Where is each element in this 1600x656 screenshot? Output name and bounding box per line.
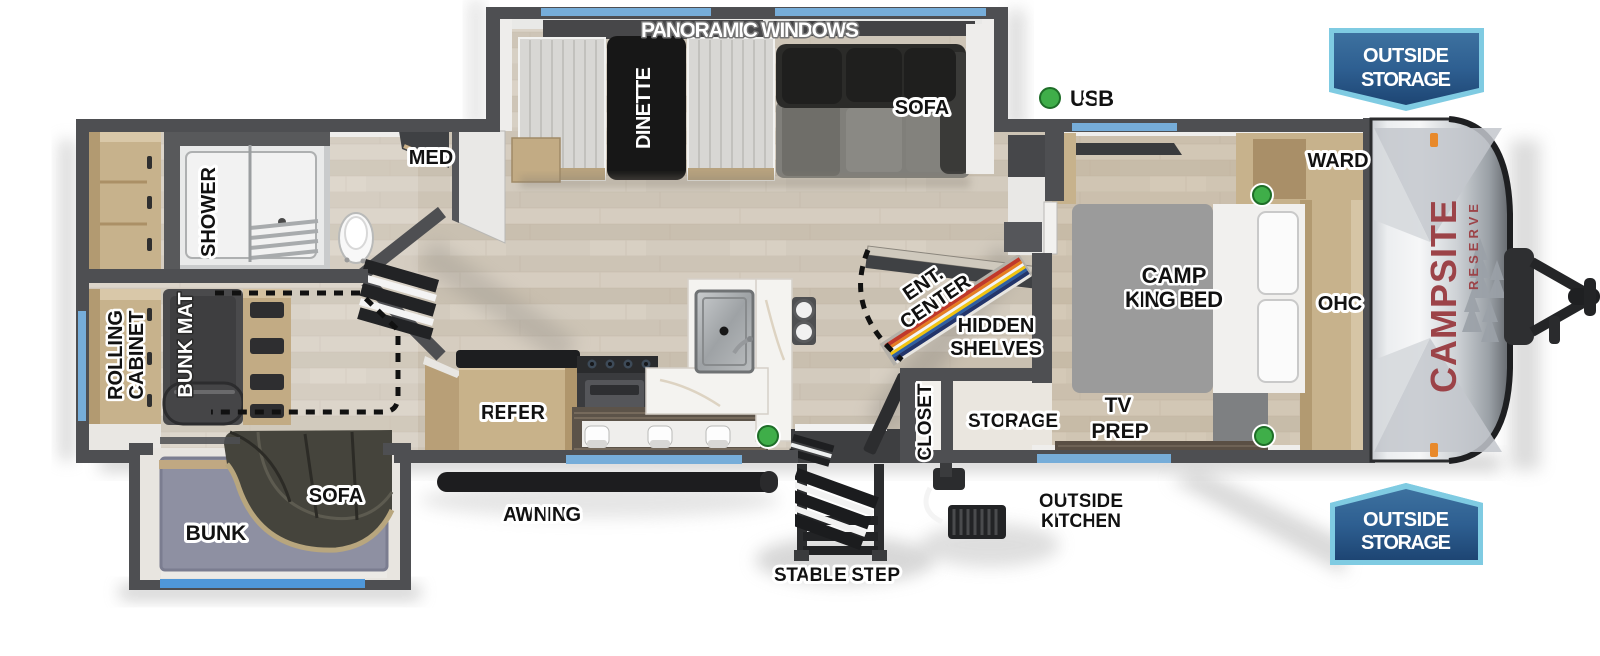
svg-text:DINETTE: DINETTE xyxy=(633,67,655,149)
svg-text:STABLE STEP: STABLE STEP xyxy=(774,565,900,586)
svg-text:OUTSIDE: OUTSIDE xyxy=(1363,45,1449,67)
svg-text:ROLLINGCABINET: ROLLINGCABINET xyxy=(105,310,148,400)
svg-text:SOFA: SOFA xyxy=(309,485,363,507)
svg-text:CLOSET: CLOSET xyxy=(915,383,936,460)
svg-text:STORAGE: STORAGE xyxy=(1361,69,1451,91)
svg-text:HIDDENSHELVES: HIDDENSHELVES xyxy=(950,315,1042,360)
svg-text:SHOWER: SHOWER xyxy=(198,166,220,257)
svg-text:SOFA: SOFA xyxy=(895,97,949,119)
svg-text:MED: MED xyxy=(409,147,453,169)
svg-text:WARD: WARD xyxy=(1307,150,1368,172)
svg-text:STORAGE: STORAGE xyxy=(1361,532,1451,554)
svg-text:BUNK MAT: BUNK MAT xyxy=(175,292,197,397)
svg-text:PANORAMIC WINDOWS: PANORAMIC WINDOWS xyxy=(641,19,859,42)
svg-text:OUTSIDE: OUTSIDE xyxy=(1363,509,1449,531)
svg-text:CAMPSITE: CAMPSITE xyxy=(1423,199,1464,393)
svg-text:OUTSIDEKITCHEN: OUTSIDEKITCHEN xyxy=(1039,491,1123,532)
svg-text:USB: USB xyxy=(1070,86,1114,111)
svg-text:BUNK: BUNK xyxy=(186,522,247,545)
svg-text:RESERVE: RESERVE xyxy=(1466,200,1481,290)
svg-text:OHC: OHC xyxy=(1318,293,1362,315)
svg-text:REFER: REFER xyxy=(481,402,546,424)
svg-text:STORAGE: STORAGE xyxy=(968,411,1058,432)
svg-text:AWNING: AWNING xyxy=(503,504,581,526)
